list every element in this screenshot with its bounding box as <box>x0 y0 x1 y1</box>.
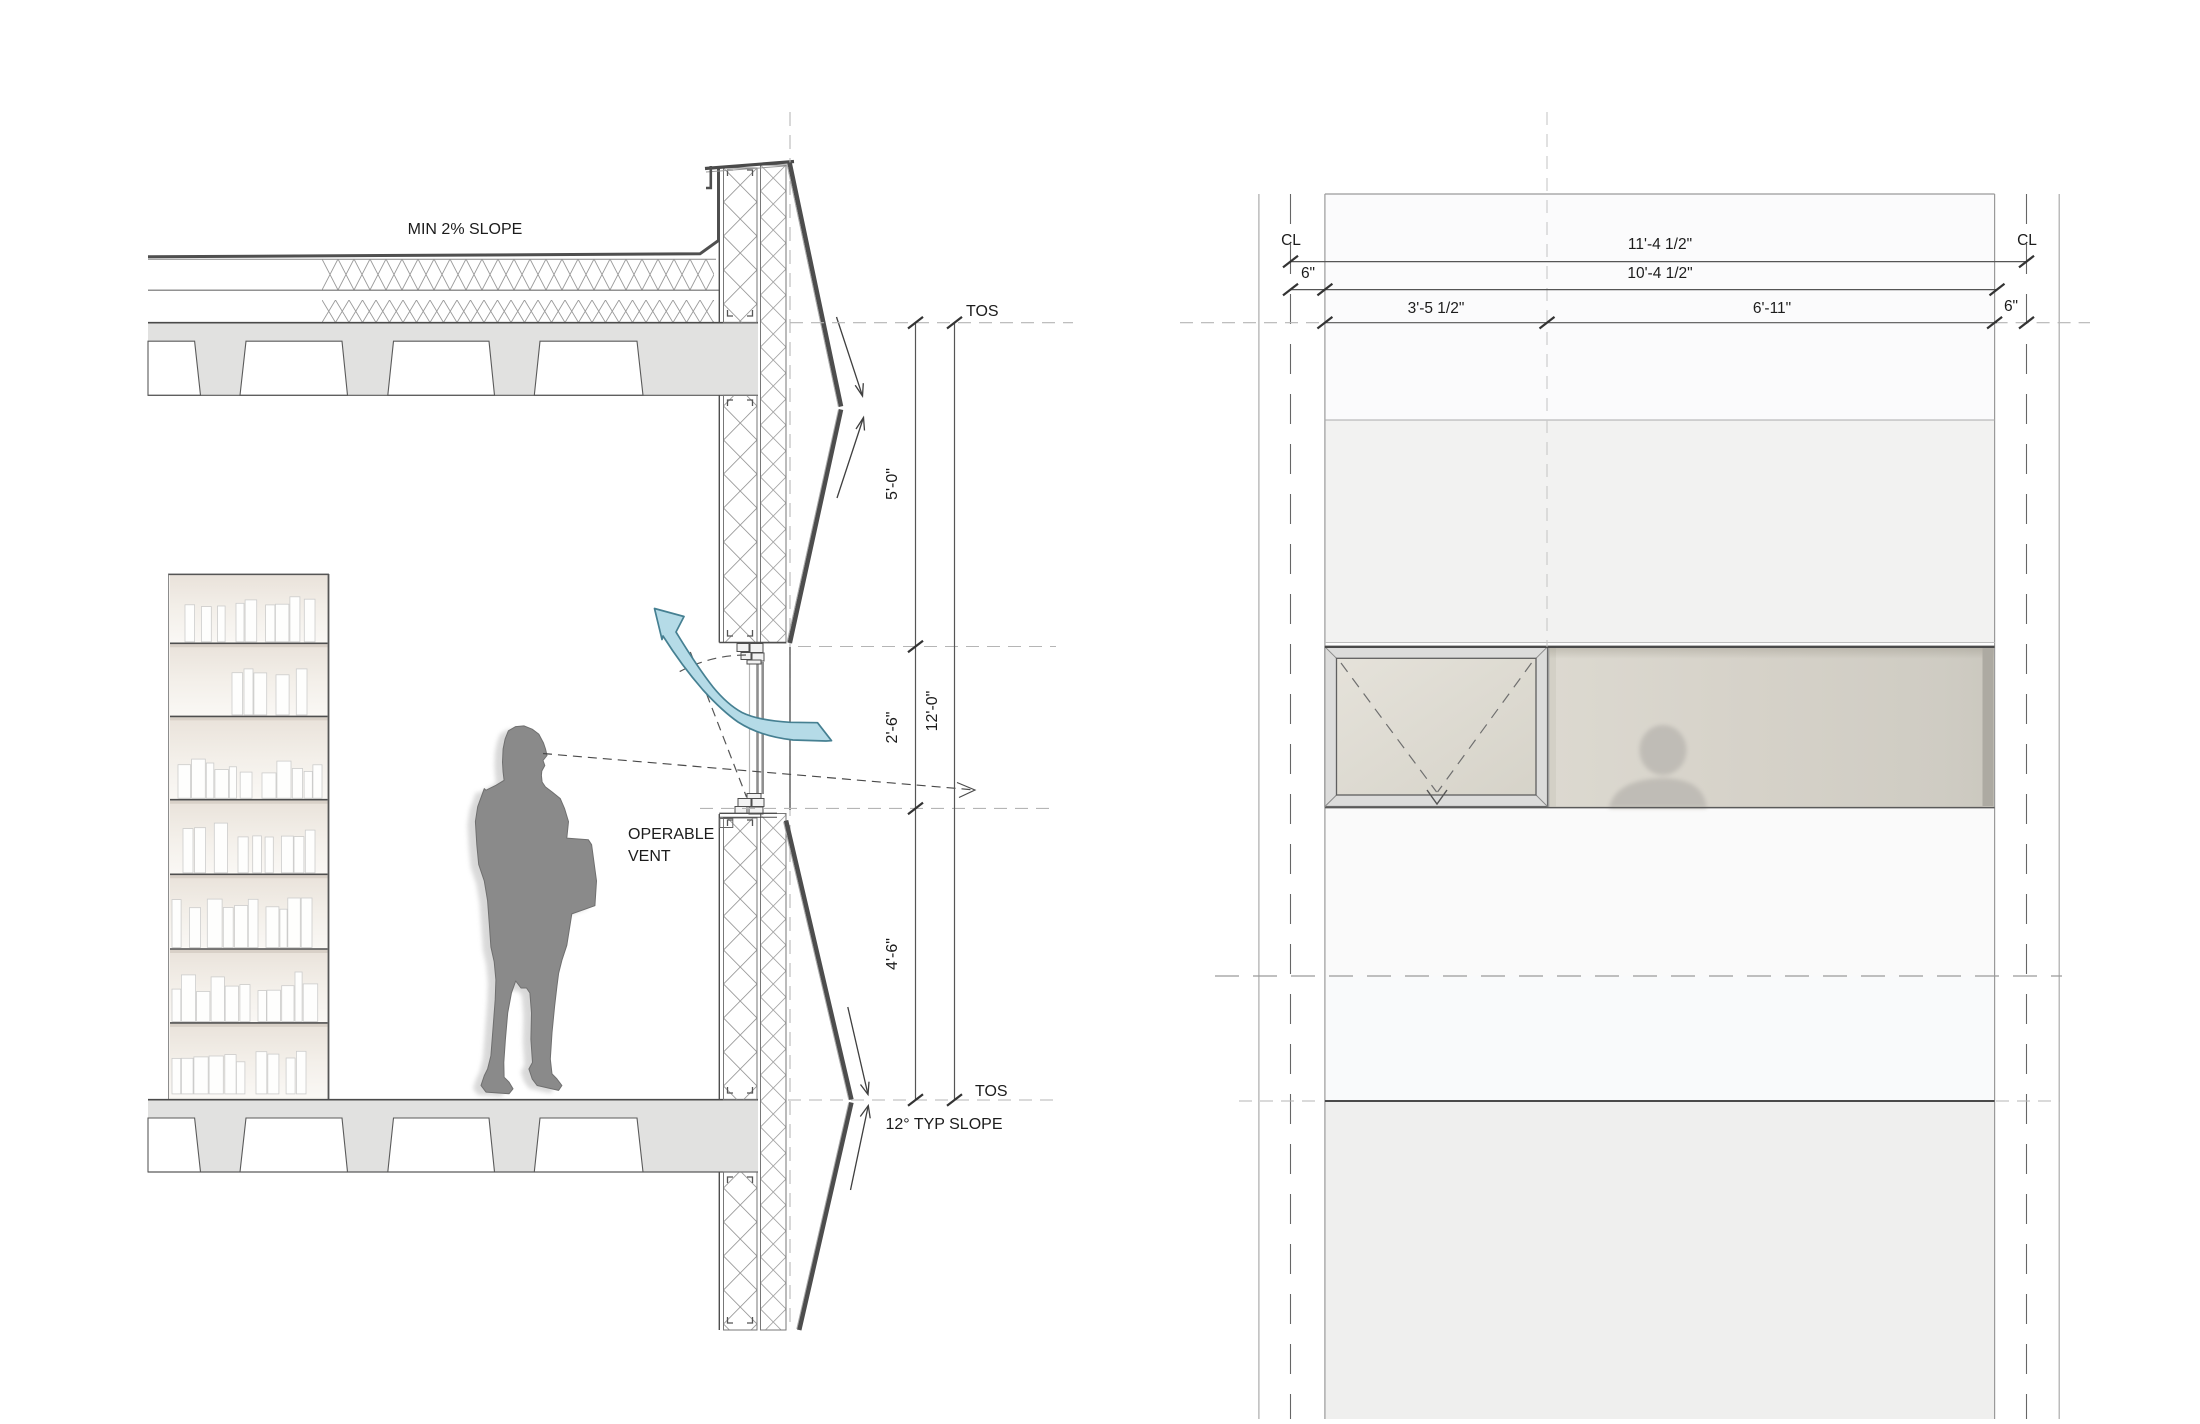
svg-text:VENT: VENT <box>628 848 671 865</box>
svg-text:6": 6" <box>1301 265 1315 282</box>
svg-text:10'-4 1/2": 10'-4 1/2" <box>1627 265 1692 282</box>
svg-text:2'-6": 2'-6" <box>884 712 901 744</box>
svg-text:5'-0": 5'-0" <box>884 468 901 500</box>
svg-text:4'-6": 4'-6" <box>884 938 901 970</box>
svg-text:3'-5 1/2": 3'-5 1/2" <box>1408 300 1465 317</box>
svg-text:12'-0": 12'-0" <box>924 691 941 732</box>
svg-text:OPERABLE: OPERABLE <box>628 826 714 843</box>
svg-text:MIN 2% SLOPE: MIN 2% SLOPE <box>408 221 523 238</box>
svg-text:12° TYP SLOPE: 12° TYP SLOPE <box>886 1116 1003 1133</box>
svg-text:TOS: TOS <box>975 1083 1008 1100</box>
svg-text:CL: CL <box>1281 232 1301 249</box>
svg-text:TOS: TOS <box>966 303 999 320</box>
svg-text:11'-4 1/2": 11'-4 1/2" <box>1628 236 1692 253</box>
svg-text:6": 6" <box>2004 298 2018 315</box>
svg-text:CL: CL <box>2017 232 2037 249</box>
svg-text:6'-11": 6'-11" <box>1753 300 1791 317</box>
